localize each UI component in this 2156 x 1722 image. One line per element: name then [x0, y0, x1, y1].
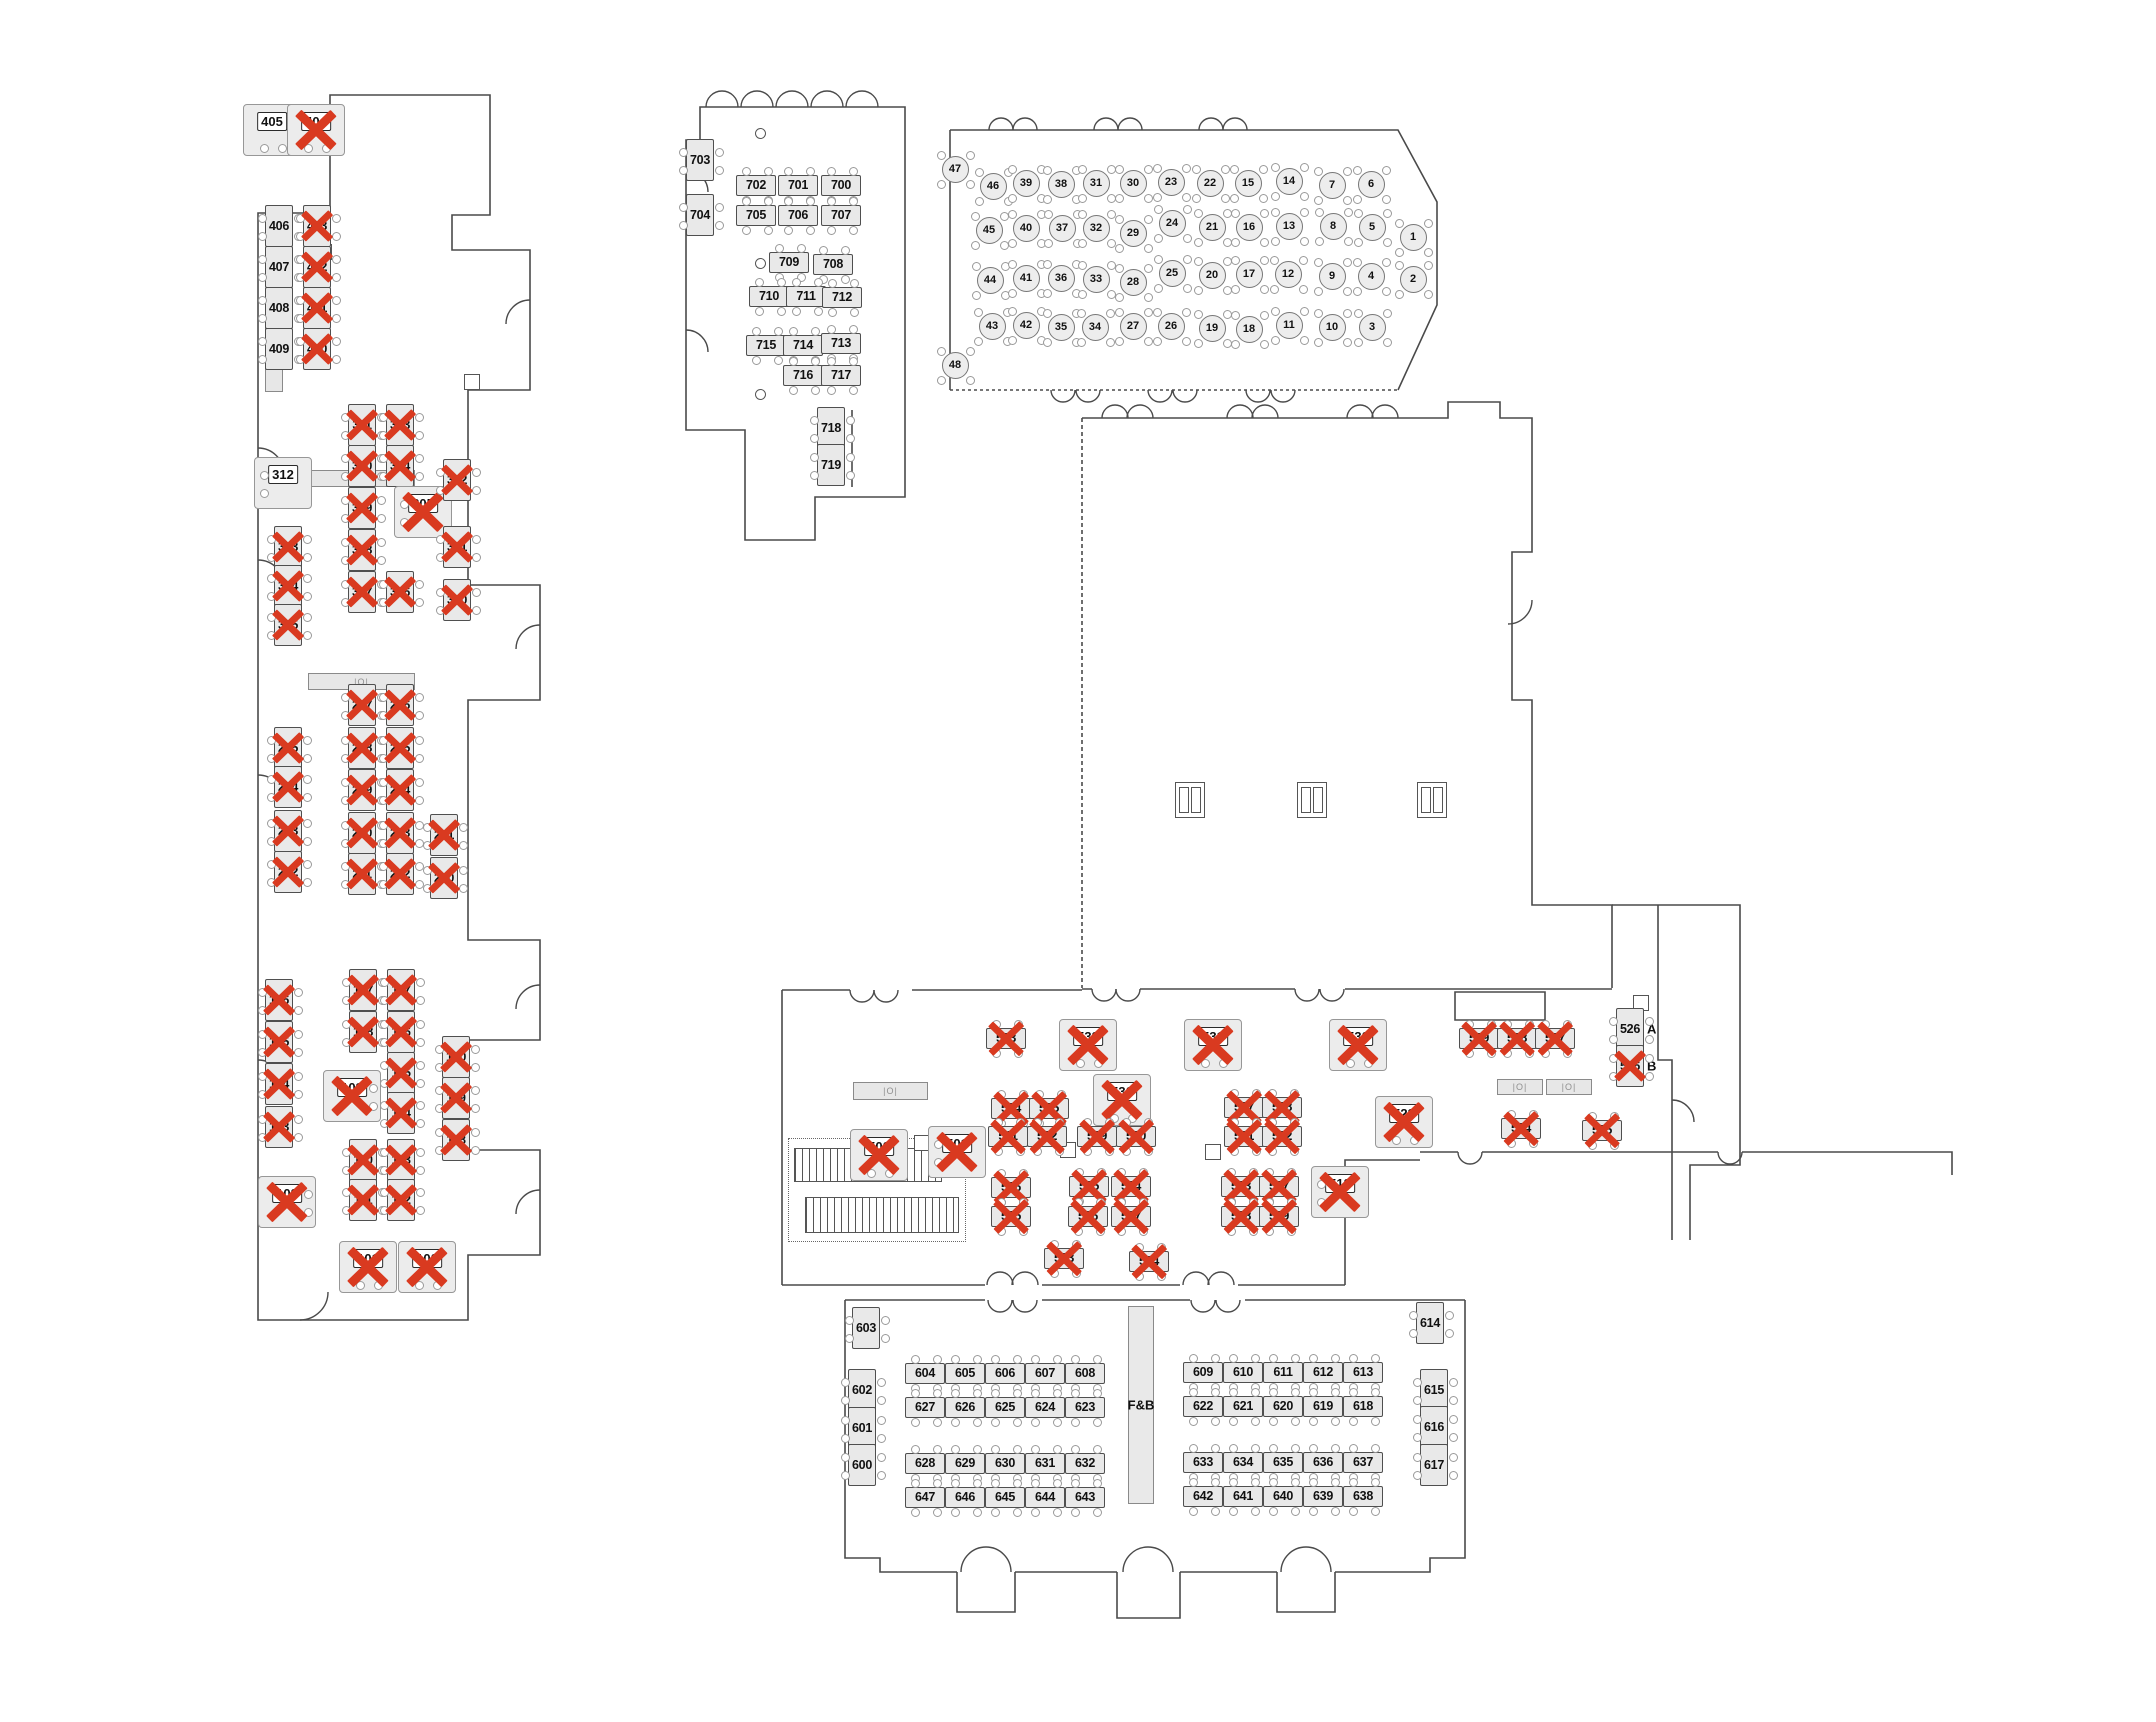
chair-icon: [1144, 194, 1153, 203]
booth-638[interactable]: 638: [1343, 1486, 1383, 1507]
chair-icon: [1299, 285, 1308, 294]
booth-619[interactable]: 619: [1303, 1396, 1343, 1417]
booth-label: 533: [996, 1032, 1016, 1045]
chair-icon: [1043, 309, 1052, 318]
booth-709[interactable]: 709: [769, 252, 809, 273]
chair-icon: [379, 454, 388, 463]
chair-icon: [973, 1355, 982, 1364]
booth-706[interactable]: 706: [778, 205, 818, 226]
chair-icon: [1290, 1089, 1299, 1098]
chair-icon: [841, 1396, 850, 1405]
chair-icon: [1135, 1243, 1144, 1252]
chair-icon: [789, 386, 798, 395]
booth-614[interactable]: 614: [1416, 1302, 1444, 1344]
booth-647[interactable]: 647: [905, 1487, 945, 1508]
booth-716[interactable]: 716: [783, 365, 823, 386]
chair-icon: [877, 1453, 886, 1462]
booth-617[interactable]: 617: [1420, 1444, 1448, 1486]
booth-301: 301: [443, 526, 471, 568]
booth-label: 537: [1234, 1101, 1254, 1114]
table-icon: |O|: [883, 1086, 898, 1096]
chair-icon: [1269, 1388, 1278, 1397]
chair-icon: [296, 337, 305, 346]
booth-label: 102: [272, 1184, 302, 1203]
chair-icon: [267, 793, 276, 802]
booth-702[interactable]: 702: [736, 175, 776, 196]
chair-icon: [1271, 336, 1280, 345]
chair-icon: [742, 197, 751, 206]
booth-label: 526: [1620, 1060, 1640, 1073]
chair-icon: [1260, 311, 1269, 320]
booth-label: 516: [1001, 1181, 1021, 1194]
booth-214: 214: [274, 766, 302, 808]
chair-icon: [973, 1389, 982, 1398]
chair-icon: [1211, 1478, 1220, 1487]
chair-icon: [811, 386, 820, 395]
round-table-2: 2: [1400, 266, 1427, 293]
chair-icon: [1314, 309, 1323, 318]
booth-407[interactable]: 407: [265, 246, 293, 288]
chair-icon: [764, 226, 773, 235]
booth-513: 513: [1221, 1176, 1261, 1197]
chair-icon: [379, 862, 388, 871]
chair-icon: [1645, 1017, 1654, 1026]
chair-icon: [1096, 1198, 1105, 1207]
chair-icon: [433, 1281, 442, 1290]
chair-icon: [1014, 1020, 1023, 1029]
chair-icon: [1122, 1147, 1131, 1156]
chair-icon: [341, 598, 350, 607]
chair-icon: [379, 821, 388, 830]
booth-714[interactable]: 714: [783, 335, 823, 356]
booth-label: 526: [1620, 1023, 1640, 1036]
booth-label: 647: [915, 1491, 935, 1504]
chair-icon: [1144, 244, 1153, 253]
chair-icon: [423, 841, 432, 850]
booth-213: 213: [274, 810, 302, 852]
chair-icon: [1157, 1272, 1166, 1281]
chair-icon: [1117, 1227, 1126, 1236]
booth-609[interactable]: 609: [1183, 1362, 1223, 1383]
chair-icon: [1115, 337, 1124, 346]
booth-623[interactable]: 623: [1065, 1397, 1105, 1418]
chair-icon: [1395, 261, 1404, 270]
booth-603[interactable]: 603: [852, 1307, 880, 1349]
chair-icon: [1371, 1354, 1380, 1363]
booth-644[interactable]: 644: [1025, 1487, 1065, 1508]
booth-608[interactable]: 608: [1065, 1363, 1105, 1384]
booth-label: 629: [955, 1457, 975, 1470]
chair-icon: [1269, 1417, 1278, 1426]
booth-616[interactable]: 616: [1420, 1406, 1448, 1448]
chair-icon: [881, 1334, 890, 1343]
booth-label: 704: [690, 209, 710, 222]
booth-label: 642: [1193, 1490, 1213, 1503]
chair-icon: [715, 221, 724, 230]
chair-icon: [1074, 1198, 1083, 1207]
booth-label: 402: [307, 261, 327, 274]
chair-icon: [1300, 237, 1309, 246]
booth-713[interactable]: 713: [821, 333, 861, 354]
booth-113: 113: [387, 1139, 415, 1181]
chair-icon: [742, 226, 751, 235]
booth-622[interactable]: 622: [1183, 1396, 1223, 1417]
booth-615[interactable]: 615: [1420, 1369, 1448, 1411]
chair-icon: [1115, 165, 1124, 174]
booth-314: 314: [274, 565, 302, 607]
chair-icon: [258, 1133, 267, 1142]
booth-208: 208: [348, 727, 376, 769]
chair-icon: [1008, 307, 1017, 316]
chair-icon: [258, 314, 267, 323]
chair-icon: [933, 1508, 942, 1517]
booth-640[interactable]: 640: [1263, 1486, 1303, 1507]
booth-label: 308: [352, 544, 372, 557]
chair-icon: [1309, 1354, 1318, 1363]
round-table-19: 19: [1199, 315, 1226, 342]
booth-311: 311: [348, 404, 376, 446]
booth-label: 509: [1269, 1210, 1289, 1223]
chair-icon: [415, 431, 424, 440]
round-table-31: 31: [1083, 170, 1110, 197]
chair-icon: [1194, 209, 1203, 218]
booth-705[interactable]: 705: [736, 205, 776, 226]
booth-531: 531: [1184, 1019, 1242, 1071]
booth-618[interactable]: 618: [1343, 1396, 1383, 1417]
booth-label: 708: [823, 258, 843, 271]
booth-label: 107: [353, 984, 373, 997]
chair-icon: [1449, 1396, 1458, 1405]
round-table-7: 7: [1319, 172, 1346, 199]
booth-600[interactable]: 600: [848, 1444, 876, 1486]
chair-icon: [1117, 1198, 1126, 1207]
chair-icon: [1201, 1059, 1210, 1068]
booth-613[interactable]: 613: [1343, 1362, 1383, 1383]
chair-icon: [1096, 1227, 1105, 1236]
chair-icon: [379, 711, 388, 720]
booth-605[interactable]: 605: [945, 1363, 985, 1384]
booth-620[interactable]: 620: [1263, 1396, 1303, 1417]
chair-icon: [436, 606, 445, 615]
booth-label: 507: [1121, 1210, 1141, 1223]
booth-710[interactable]: 710: [749, 286, 789, 307]
chair-icon: [260, 144, 269, 153]
booth-label: 603: [856, 1322, 876, 1335]
registration-table: |O|: [1546, 1079, 1592, 1095]
booth-704[interactable]: 704: [686, 194, 714, 236]
booth-611[interactable]: 611: [1263, 1362, 1303, 1383]
chair-icon: [1331, 1417, 1340, 1426]
chair-icon: [400, 500, 409, 509]
chair-icon: [1249, 1198, 1258, 1207]
chair-icon: [1260, 238, 1269, 247]
booth-526-A[interactable]: 526A: [1616, 1008, 1644, 1050]
chair-icon: [1271, 163, 1280, 172]
chair-icon: [332, 232, 341, 241]
booth-label: 204: [390, 784, 410, 797]
booth-642[interactable]: 642: [1183, 1486, 1223, 1507]
booth-511: 511: [988, 1126, 1028, 1147]
booth-604[interactable]: 604: [905, 1363, 945, 1384]
booth-107: 107: [349, 969, 377, 1011]
booth-518: 518: [1311, 1166, 1369, 1218]
chair-icon: [1309, 1507, 1318, 1516]
chair-icon: [377, 514, 386, 523]
chair-icon: [1194, 238, 1203, 247]
booth-312[interactable]: 312: [254, 457, 312, 509]
chair-icon: [1183, 255, 1192, 264]
chair-icon: [1449, 1453, 1458, 1462]
booth-label: 719: [821, 459, 841, 472]
chair-icon: [911, 1445, 920, 1454]
booth-label: 716: [793, 369, 813, 382]
chair-icon: [1115, 194, 1124, 203]
chair-icon: [1383, 309, 1392, 318]
chair-icon: [1031, 1508, 1040, 1517]
booth-634[interactable]: 634: [1223, 1452, 1263, 1473]
chair-icon: [1033, 1118, 1042, 1127]
booth-637[interactable]: 637: [1343, 1452, 1383, 1473]
chair-icon: [1291, 1388, 1300, 1397]
chair-icon: [1043, 289, 1052, 298]
booth-label: 508: [1231, 1210, 1251, 1223]
booth-303: 303: [386, 404, 414, 446]
chair-icon: [341, 580, 350, 589]
booth-408[interactable]: 408: [265, 287, 293, 329]
booth-606[interactable]: 606: [985, 1363, 1025, 1384]
booth-label: 202: [390, 868, 410, 881]
booth-label: 527: [1545, 1032, 1565, 1045]
chair-icon: [806, 197, 815, 206]
booth-120: 120: [442, 1036, 470, 1078]
booth-707[interactable]: 707: [821, 205, 861, 226]
chair-icon: [951, 1418, 960, 1427]
chair-icon: [715, 166, 724, 175]
booth-628[interactable]: 628: [905, 1453, 945, 1474]
chair-icon: [850, 308, 859, 317]
chair-icon: [1260, 209, 1269, 218]
booth-627[interactable]: 627: [905, 1397, 945, 1418]
chair-icon: [377, 496, 386, 505]
chair-icon: [342, 1188, 351, 1197]
chair-icon: [459, 841, 468, 850]
booth-label: 207: [352, 699, 372, 712]
chair-icon: [1424, 219, 1433, 228]
booth-639[interactable]: 639: [1303, 1486, 1343, 1507]
booth-409[interactable]: 409: [265, 328, 293, 370]
chair-icon: [1409, 1329, 1418, 1338]
chair-icon: [1107, 210, 1116, 219]
chair-icon: [379, 796, 388, 805]
chair-icon: [1343, 258, 1352, 267]
chair-icon: [341, 514, 350, 523]
booth-711[interactable]: 711: [786, 286, 826, 307]
chair-icon: [849, 357, 858, 366]
booth-610[interactable]: 610: [1223, 1362, 1263, 1383]
booth-635[interactable]: 635: [1263, 1452, 1303, 1473]
booth-612[interactable]: 612: [1303, 1362, 1343, 1383]
booth-708[interactable]: 708: [813, 254, 853, 275]
chair-icon: [303, 736, 312, 745]
booth-718[interactable]: 718: [817, 407, 845, 449]
chair-icon: [849, 226, 858, 235]
chair-icon: [1271, 237, 1280, 246]
booth-621[interactable]: 621: [1223, 1396, 1263, 1417]
round-table-38: 38: [1048, 171, 1075, 198]
booth-label: 635: [1273, 1456, 1293, 1469]
chair-icon: [415, 1281, 424, 1290]
chair-icon: [951, 1508, 960, 1517]
chair-icon: [1525, 1049, 1534, 1058]
round-table-36: 36: [1048, 265, 1075, 292]
chair-icon: [810, 453, 819, 462]
chair-icon: [294, 1048, 303, 1057]
chair-icon: [296, 296, 305, 305]
registration-table: |O|: [1497, 1079, 1543, 1095]
chair-icon: [755, 307, 764, 316]
fnb-label: F&B: [1128, 1398, 1155, 1413]
chair-icon: [937, 376, 946, 385]
chair-icon: [1154, 234, 1163, 243]
chair-icon: [994, 1147, 1003, 1156]
chair-icon: [1106, 309, 1115, 318]
chair-icon: [1016, 1118, 1025, 1127]
chair-icon: [341, 839, 350, 848]
booth-101: 101: [339, 1241, 397, 1293]
chair-icon: [1382, 287, 1391, 296]
chair-icon: [1097, 1168, 1106, 1177]
chair-icon: [1135, 1272, 1144, 1281]
chair-icon: [341, 472, 350, 481]
chair-icon: [828, 308, 837, 317]
chair-icon: [1107, 239, 1116, 248]
booth-label: 301: [447, 541, 467, 554]
chair-icon: [1353, 258, 1362, 267]
chair-icon: [459, 884, 468, 893]
booth-label: 624: [1035, 1401, 1055, 1414]
chair-icon: [1271, 192, 1280, 201]
chair-icon: [369, 1102, 378, 1111]
chair-icon: [379, 754, 388, 763]
chair-icon: [415, 598, 424, 607]
chair-icon: [1349, 1444, 1358, 1453]
chair-icon: [1083, 1147, 1092, 1156]
round-table-5: 5: [1359, 214, 1386, 241]
booth-label: 703: [690, 154, 710, 167]
booth-712[interactable]: 712: [822, 287, 862, 308]
booth-625[interactable]: 625: [985, 1397, 1025, 1418]
booth-501: 501: [928, 1126, 986, 1178]
chair-icon: [267, 775, 276, 784]
booth-700[interactable]: 700: [821, 175, 861, 196]
booth-label: 310: [352, 460, 372, 473]
booth-503: 503: [1044, 1248, 1084, 1269]
chair-icon: [1211, 1444, 1220, 1453]
chair-icon: [1008, 260, 1017, 269]
chair-icon: [679, 221, 688, 230]
booth-300: 300: [443, 579, 471, 621]
chair-icon: [379, 580, 388, 589]
booth-703[interactable]: 703: [686, 139, 714, 181]
booth-label: 211: [352, 868, 371, 881]
booth-label: 300: [447, 594, 467, 607]
chair-icon: [1371, 1478, 1380, 1487]
chair-icon: [379, 778, 388, 787]
chair-icon: [258, 255, 267, 264]
booth-646[interactable]: 646: [945, 1487, 985, 1508]
booth-641[interactable]: 641: [1223, 1486, 1263, 1507]
booth-645[interactable]: 645: [985, 1487, 1025, 1508]
booth-117: 117: [387, 969, 415, 1011]
round-table-48: 48: [942, 352, 969, 379]
round-table-39: 39: [1013, 170, 1040, 197]
chair-icon: [332, 273, 341, 282]
booth-label: 626: [955, 1401, 975, 1414]
chair-icon: [1229, 1388, 1238, 1397]
booth-label: 633: [1193, 1456, 1213, 1469]
booth-717[interactable]: 717: [821, 365, 861, 386]
round-table-35: 35: [1048, 314, 1075, 341]
booth-624[interactable]: 624: [1025, 1397, 1065, 1418]
chair-icon: [1445, 1311, 1454, 1320]
booth-label: 104: [269, 1078, 289, 1091]
chair-icon: [1503, 1020, 1512, 1029]
chair-icon: [379, 598, 388, 607]
booth-631[interactable]: 631: [1025, 1453, 1065, 1474]
door-arcs: [258, 91, 1742, 1572]
booth-633[interactable]: 633: [1183, 1452, 1223, 1473]
booth-602[interactable]: 602: [848, 1369, 876, 1411]
booth-114: 114: [387, 1092, 415, 1134]
booth-207: 207: [348, 684, 376, 726]
booth-632[interactable]: 632: [1065, 1453, 1105, 1474]
booth-626[interactable]: 626: [945, 1397, 985, 1418]
chair-icon: [341, 538, 350, 547]
chair-icon: [1031, 1355, 1040, 1364]
booth-701[interactable]: 701: [778, 175, 818, 196]
chair-icon: [1183, 284, 1192, 293]
chair-icon: [341, 821, 350, 830]
booth-629[interactable]: 629: [945, 1453, 985, 1474]
column-icon: [464, 374, 480, 390]
booth-label: 400: [307, 343, 327, 356]
chair-icon: [1268, 1147, 1277, 1156]
booth-601[interactable]: 601: [848, 1407, 876, 1449]
chair-icon: [1265, 1168, 1274, 1177]
booth-406[interactable]: 406: [265, 205, 293, 247]
chair-icon: [881, 1316, 890, 1325]
booth-719[interactable]: 719: [817, 444, 845, 486]
column-icon: [1205, 1144, 1221, 1160]
booth-643[interactable]: 643: [1065, 1487, 1105, 1508]
chair-icon: [1353, 287, 1362, 296]
booth-636[interactable]: 636: [1303, 1452, 1343, 1473]
chair-icon: [1230, 165, 1239, 174]
booth-label: 209: [352, 784, 372, 797]
chair-icon: [764, 197, 773, 206]
booth-630[interactable]: 630: [985, 1453, 1025, 1474]
chair-icon: [1314, 287, 1323, 296]
chair-icon: [1413, 1415, 1422, 1424]
booth-label: 303: [390, 419, 410, 432]
chair-icon: [1019, 1090, 1028, 1099]
booth-607[interactable]: 607: [1025, 1363, 1065, 1384]
chair-icon: [303, 837, 312, 846]
booth-528: 528: [1497, 1028, 1537, 1049]
round-table-12: 12: [1275, 261, 1302, 288]
booth-715[interactable]: 715: [746, 335, 786, 356]
booth-label: 210: [352, 827, 372, 840]
